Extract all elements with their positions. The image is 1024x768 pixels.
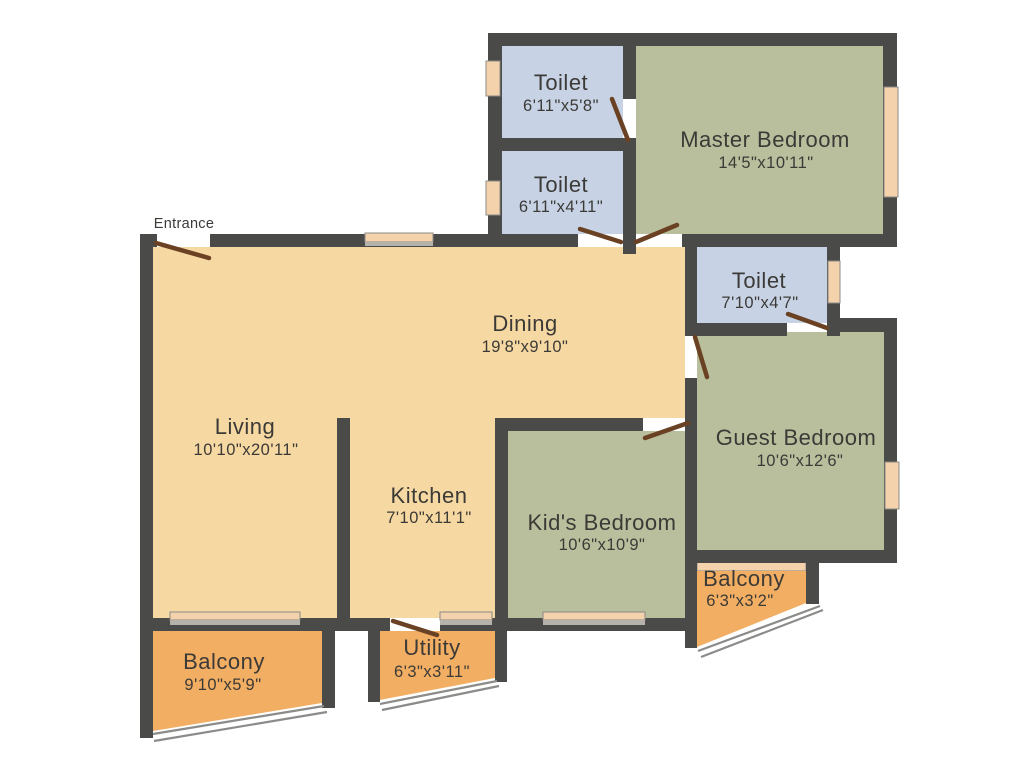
room-label-kitchen: Kitchen 7'10"x11'1" [386, 483, 472, 527]
room-dims: 6'3"x3'2" [706, 592, 773, 610]
room-name: Toilet [534, 70, 588, 95]
wall [495, 631, 507, 682]
room-dims: 10'6"x12'6" [757, 452, 844, 470]
window [884, 87, 898, 197]
wall [322, 618, 335, 708]
room-dims: 7'10"x11'1" [386, 509, 472, 527]
room-label-dining: Dining 19'8"x9'10" [482, 311, 569, 356]
wall [682, 234, 897, 247]
window-sill [365, 242, 433, 246]
wall [502, 138, 623, 151]
window [885, 462, 899, 509]
window [440, 612, 492, 620]
window-sill [543, 620, 645, 625]
window [365, 233, 433, 242]
room-dims: 10'6"x10'9" [559, 536, 646, 554]
room-dims: 6'3"x3'11" [394, 663, 470, 681]
wall [685, 247, 697, 335]
wall [337, 418, 350, 618]
window [486, 61, 500, 96]
wall [623, 138, 636, 254]
wall [806, 563, 819, 604]
room-name: Balcony [703, 566, 785, 591]
window [543, 612, 645, 620]
room-name: Guest Bedroom [716, 425, 877, 450]
window [828, 261, 840, 303]
room-label-utility: Utility 6'3"x3'11" [394, 635, 470, 681]
wall [685, 550, 897, 563]
room-name: Balcony [183, 649, 265, 674]
floor-plan: Entrance Toilet 6'11"x5'8" Toilet 6'11"x… [0, 0, 1024, 768]
wall [488, 33, 897, 46]
room-name: Toilet [534, 172, 588, 197]
room-dims: 6'11"x5'8" [523, 97, 599, 115]
room-label-balcony-right: Balcony 6'3"x3'2" [703, 566, 785, 610]
wall [140, 234, 153, 738]
room-dims: 14'5"x10'11" [718, 154, 813, 172]
wall [368, 618, 380, 702]
wall [495, 418, 643, 431]
room-dims: 10'10"x20'11" [194, 441, 299, 459]
room-label-toilet-1: Toilet 6'11"x5'8" [523, 70, 599, 115]
window [170, 612, 300, 620]
room-name: Toilet [732, 268, 786, 293]
room-label-balcony-left: Balcony 9'10"x5'9" [183, 649, 265, 694]
wall [884, 318, 897, 563]
room-name: Master Bedroom [680, 127, 850, 152]
room-dims: 7'10"x4'7" [721, 294, 798, 312]
room-name: Living [215, 414, 275, 439]
window-sill [440, 620, 492, 625]
room-name: Utility [403, 635, 460, 660]
room-name: Dining [492, 311, 557, 336]
window-sill [170, 620, 300, 625]
wall [685, 378, 697, 648]
wall [685, 323, 787, 336]
window [486, 181, 500, 215]
floor-plan-canvas: Entrance Toilet 6'11"x5'8" Toilet 6'11"x… [0, 0, 1024, 768]
wall [495, 418, 508, 618]
room-dims: 6'11"x4'11" [519, 198, 603, 216]
wall [623, 45, 636, 99]
entrance-label: Entrance [154, 216, 214, 232]
room-dims: 9'10"x5'9" [184, 676, 261, 694]
room-name: Kitchen [391, 483, 468, 508]
room-dims: 19'8"x9'10" [482, 338, 569, 356]
room-name: Kid's Bedroom [528, 510, 677, 535]
